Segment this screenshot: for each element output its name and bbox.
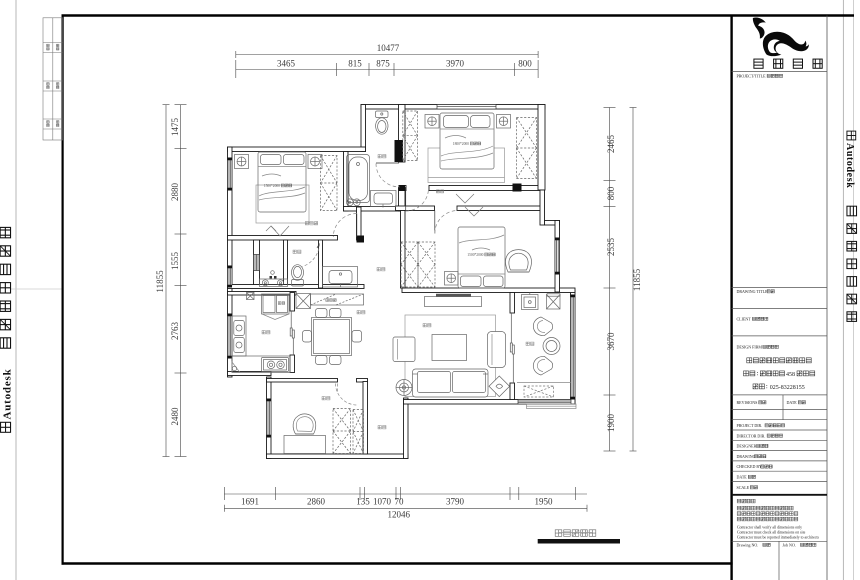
svg-text:3790: 3790: [446, 497, 465, 507]
svg-text:1950: 1950: [535, 497, 554, 507]
svg-text:Contractor must be reported im: Contractor must be reported immediately …: [737, 536, 820, 540]
svg-text:2480: 2480: [170, 407, 180, 426]
svg-text:CHECKED BY: CHECKED BY: [737, 464, 763, 469]
svg-text:1500*2000: 1500*2000: [467, 253, 483, 257]
svg-text:PROJECT DIR.: PROJECT DIR.: [737, 423, 763, 428]
svg-text:DATE: DATE: [737, 475, 748, 480]
svg-text:1500*2000: 1500*2000: [264, 184, 280, 188]
svg-text:135: 135: [356, 497, 370, 507]
svg-text:DATE: DATE: [787, 400, 798, 405]
svg-text:1800*2000: 1800*2000: [453, 142, 469, 146]
svg-text:12046: 12046: [387, 510, 410, 520]
svg-text:1691: 1691: [241, 497, 259, 507]
svg-text:DESIGNER: DESIGNER: [737, 444, 757, 449]
svg-text:3970: 3970: [446, 59, 465, 69]
svg-text:DRAWING TITLE: DRAWING TITLE: [737, 289, 769, 294]
svg-text:800: 800: [606, 186, 616, 200]
svg-text:Contractor shall verify all di: Contractor shall verify all dimensions o…: [737, 526, 802, 530]
svg-text:SCALE: SCALE: [737, 485, 750, 490]
svg-text:Drawing NO.: Drawing NO.: [737, 543, 759, 548]
svg-text:REVISIONS: REVISIONS: [737, 400, 758, 405]
svg-text:2763: 2763: [170, 322, 180, 341]
svg-text:Contractor must check all dime: Contractor must check all dimensions on …: [737, 531, 806, 535]
svg-text:Autodesk: Autodesk: [2, 368, 14, 419]
svg-text:DESIGN FIRM: DESIGN FIRM: [737, 345, 763, 350]
svg-text:1555: 1555: [170, 252, 180, 271]
svg-text:875: 875: [376, 59, 390, 69]
svg-text:025-83228155: 025-83228155: [770, 385, 805, 391]
svg-text:PROJECT/TITLE: PROJECT/TITLE: [737, 74, 767, 79]
svg-text:815: 815: [348, 59, 362, 69]
svg-text:2880: 2880: [170, 183, 180, 202]
svg-text:11855: 11855: [632, 268, 642, 291]
svg-text:2860: 2860: [307, 497, 326, 507]
svg-text:3465: 3465: [277, 59, 296, 69]
svg-text:1475: 1475: [170, 118, 180, 137]
svg-text:Job NO.: Job NO.: [783, 543, 796, 548]
svg-text:11855: 11855: [155, 270, 165, 293]
svg-text:70: 70: [395, 497, 405, 507]
svg-text:2465: 2465: [606, 135, 616, 154]
svg-text:1070: 1070: [373, 497, 392, 507]
svg-text:10477: 10477: [377, 43, 400, 53]
svg-text:Autodesk: Autodesk: [844, 143, 855, 188]
svg-text:1900: 1900: [606, 414, 616, 433]
svg-text:DRAWING: DRAWING: [737, 454, 756, 459]
svg-text:3670: 3670: [606, 332, 616, 351]
svg-text:DIRECTOR DIR.: DIRECTOR DIR.: [737, 433, 766, 438]
svg-text:458: 458: [786, 372, 795, 378]
svg-text:2535: 2535: [606, 238, 616, 257]
svg-text:CLIENT: CLIENT: [737, 317, 752, 322]
svg-text:800: 800: [518, 59, 532, 69]
